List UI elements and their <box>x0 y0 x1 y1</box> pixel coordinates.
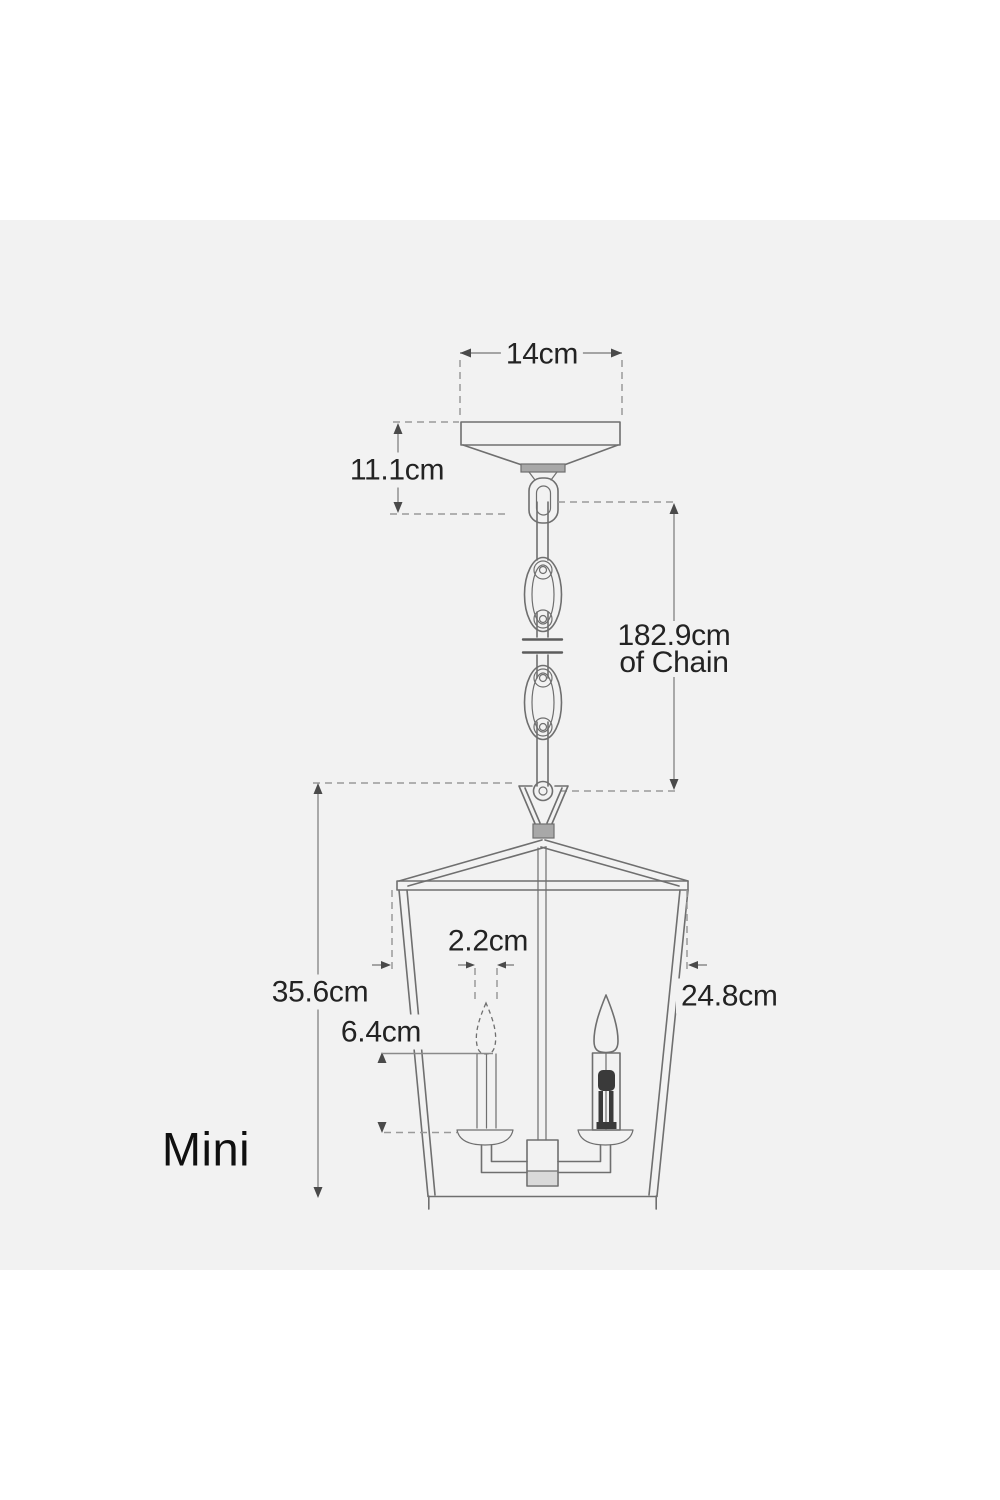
roof-edges <box>399 840 688 886</box>
lantern-roof <box>397 840 688 890</box>
arrow-down-icon <box>394 502 403 513</box>
candle-left-sleeve <box>477 1054 496 1128</box>
hanging-chain <box>523 502 562 786</box>
candle-left-bobeche <box>457 1130 513 1145</box>
arms-and-block <box>482 1140 611 1186</box>
candle-arms <box>482 1145 611 1173</box>
dim-label-canopy-width: 14cm <box>501 337 583 372</box>
canopy-plate <box>461 422 620 445</box>
chain-junction <box>540 616 547 623</box>
dim-label-candle-height: 6.4cm <box>336 1015 426 1050</box>
block-fill <box>528 1171 557 1185</box>
apex-collar <box>533 824 554 838</box>
arrow-left-icon <box>497 962 506 969</box>
socket-bar <box>599 1091 604 1125</box>
chain-junction <box>540 724 547 731</box>
candle-left <box>457 1003 513 1145</box>
arrow-up-icon <box>314 783 323 794</box>
center-stem <box>538 848 546 1140</box>
canopy-cone <box>463 445 618 465</box>
yoke-bracket <box>519 786 568 826</box>
arrow-right-icon <box>466 962 475 969</box>
arrow-down-icon <box>314 1187 323 1198</box>
chain-oval-link-2 <box>525 666 562 740</box>
extension-lines <box>392 890 687 974</box>
arrow-up-icon <box>670 503 679 514</box>
arrow-right-icon <box>611 349 622 358</box>
yoke-ring-inner <box>539 787 547 795</box>
chain-side-links <box>537 502 548 786</box>
candle-right-bobeche <box>578 1130 633 1145</box>
lantern-dimension-drawing <box>0 0 1000 1500</box>
bottom-rim <box>428 1196 657 1209</box>
arrow-left-icon <box>460 349 471 358</box>
chain-junction <box>540 567 547 574</box>
product-size-label: Mini <box>162 1122 250 1177</box>
canopy-collar <box>521 464 565 472</box>
arrow-up-icon <box>394 423 403 434</box>
bulb-base <box>598 1070 615 1091</box>
dim-label-lantern-height: 35.6cm <box>267 975 374 1010</box>
top-rim-band <box>397 881 688 890</box>
socket-base <box>597 1122 617 1129</box>
dim-label-lantern-width: 24.8cm <box>676 979 783 1014</box>
dim-lantern-width <box>372 890 707 974</box>
chain-oval-link-1 <box>525 558 562 632</box>
candle-right-flame <box>594 995 618 1053</box>
chain-length-unit: of Chain <box>618 649 731 676</box>
dim-candle-height <box>378 1052 494 1133</box>
dim-label-candle-width: 2.2cm <box>443 924 533 959</box>
chain-length-value: 182.9cm <box>618 622 731 649</box>
extension-lines <box>475 968 497 1004</box>
candle-left-flame <box>476 1003 495 1054</box>
ceiling-canopy <box>461 422 620 523</box>
dim-candle-width <box>458 962 514 1005</box>
candle-right <box>578 995 633 1145</box>
chain-break-symbol <box>523 640 562 653</box>
yoke-ring <box>534 782 553 801</box>
arrow-right-icon <box>381 961 391 969</box>
socket-bar <box>609 1091 614 1125</box>
arrow-left-icon <box>688 961 698 969</box>
hanger-yoke <box>519 782 568 839</box>
chain-junction <box>540 675 547 682</box>
arrow-down-icon <box>378 1122 387 1133</box>
arrow-down-icon <box>670 779 679 790</box>
dim-label-canopy-height: 11.1cm <box>345 453 449 488</box>
dim-label-chain-length: 182.9cm of Chain <box>613 621 736 677</box>
stem-loop-outer <box>529 478 558 523</box>
